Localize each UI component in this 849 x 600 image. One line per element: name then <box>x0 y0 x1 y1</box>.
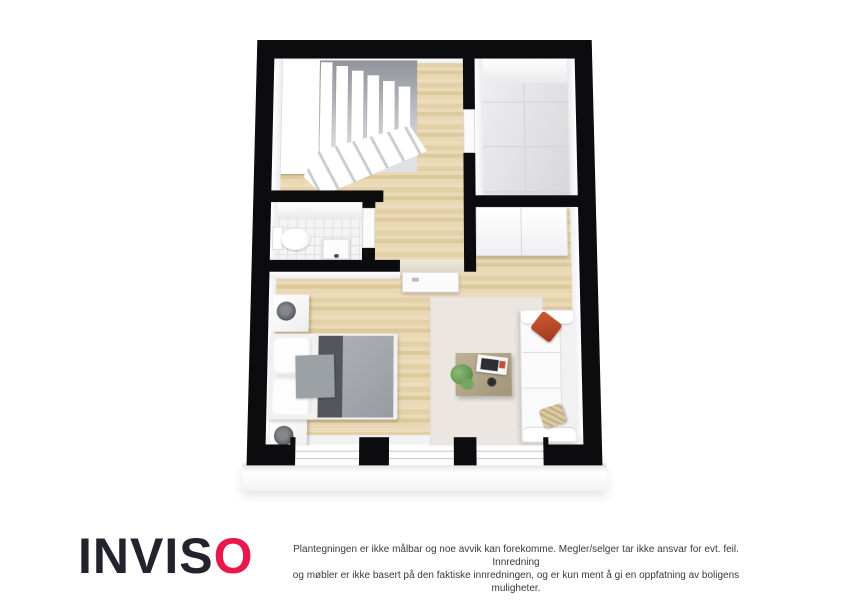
sofa-seat-seam <box>523 388 562 389</box>
living-top-wall <box>270 260 400 272</box>
top-wall <box>257 40 592 59</box>
stair-landing <box>281 60 320 174</box>
pier-stub <box>543 437 548 444</box>
logo-text-main: INVIS <box>78 528 214 584</box>
living-topwall-face <box>269 272 400 279</box>
living-door-threshold <box>400 260 464 272</box>
pier-stub <box>454 437 477 444</box>
magazine-cover <box>480 358 498 371</box>
door-handle <box>412 278 419 282</box>
window-pier <box>359 444 389 465</box>
storage-bottom-wall <box>464 195 596 207</box>
storage-topwall-face <box>475 59 576 83</box>
disclaimer-line2: og møbler er ikke basert på den faktiske… <box>292 569 740 595</box>
bottom-wall-segment <box>247 444 296 465</box>
floorplan-scene <box>246 40 603 493</box>
plant-leaf <box>461 378 474 389</box>
inviso-logo: INVISO <box>78 527 254 585</box>
divider-wall-hall-storage <box>463 153 476 272</box>
sink-drain <box>334 254 339 258</box>
window <box>295 446 359 466</box>
floorplan-page: INVISO Plantegningen er ikke målbar og n… <box>0 0 849 600</box>
bottom-wall-segment <box>543 444 602 465</box>
pier-stub <box>290 437 295 444</box>
disclaimer-line1: Plantegningen er ikke målbar og noe avvi… <box>292 543 740 569</box>
bathroom-door <box>362 208 375 248</box>
storage-leftwall-face <box>475 59 484 196</box>
logo-text-accent: O <box>214 528 254 584</box>
bathroom-topwall-face <box>271 202 363 218</box>
storage-door <box>463 109 475 153</box>
window <box>476 446 543 466</box>
window-pier <box>454 444 477 465</box>
bed-duvet <box>342 336 394 418</box>
sofa-seat-seam <box>522 352 561 353</box>
bathroom-right-wall <box>362 190 375 207</box>
sofa-armrest <box>522 428 576 442</box>
bed-throw <box>295 354 335 398</box>
window <box>389 446 454 466</box>
disclaimer-text: Plantegningen er ikke målbar og noe avvi… <box>292 543 740 595</box>
magazine-accent <box>499 361 506 369</box>
plan-base <box>242 463 607 490</box>
floorplan <box>246 40 603 493</box>
pier-stub <box>359 437 389 444</box>
living-room-door <box>402 272 459 293</box>
table-bowl <box>487 377 496 386</box>
